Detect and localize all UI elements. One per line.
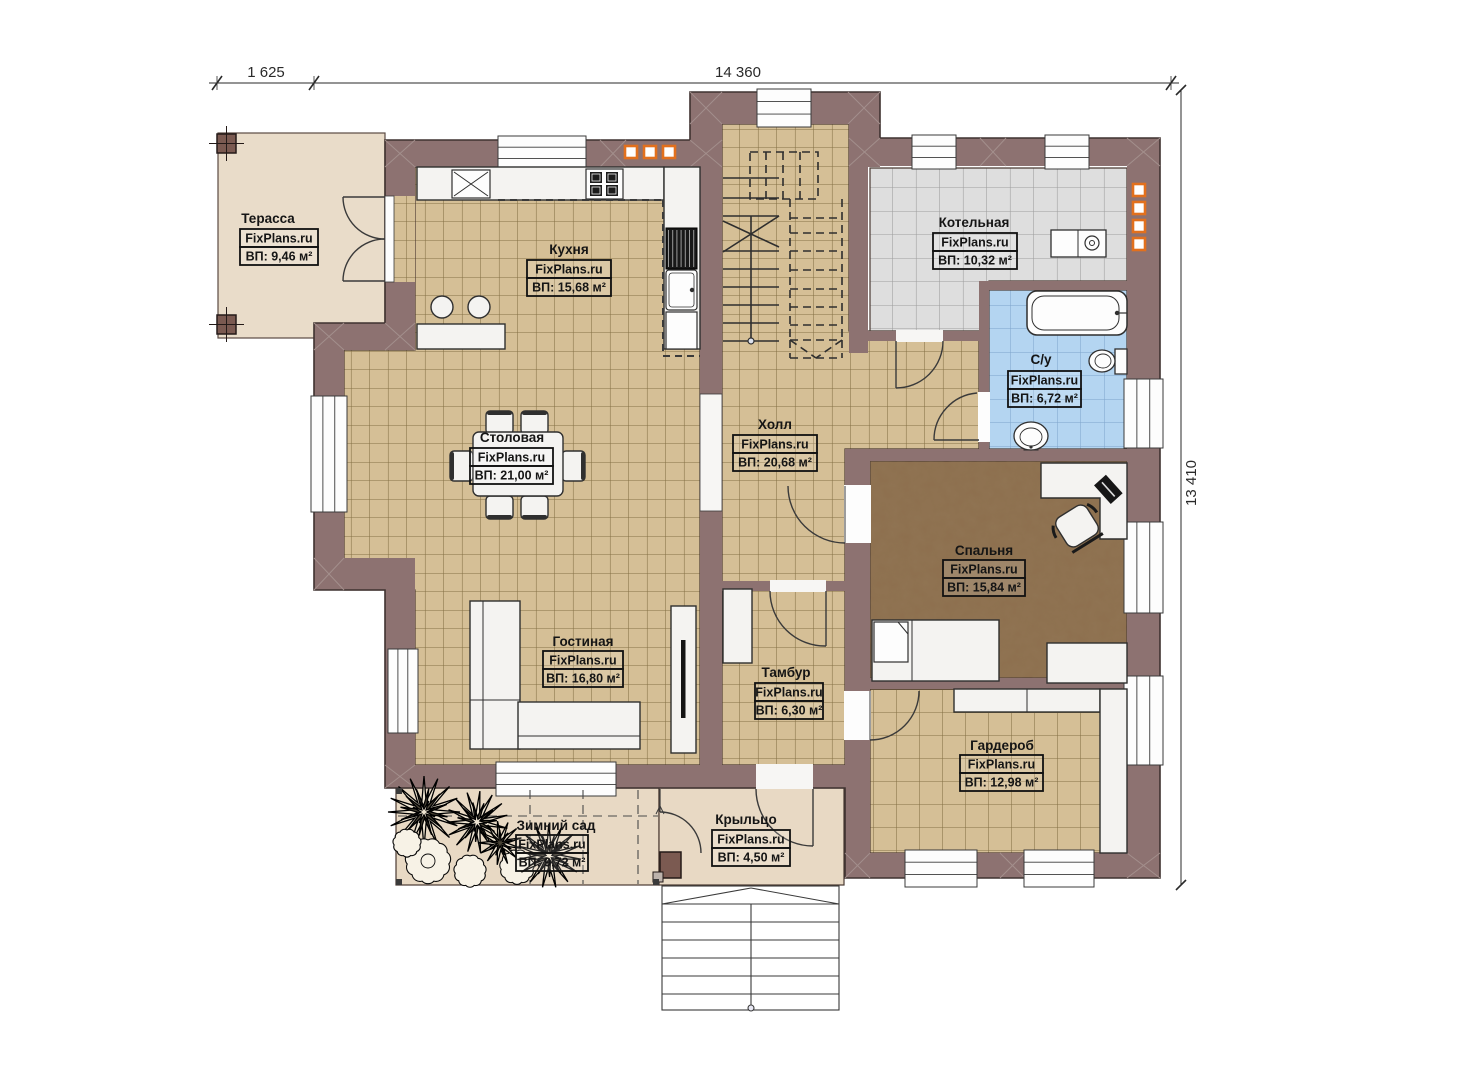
svg-text:FixPlans.ru: FixPlans.ru	[717, 833, 784, 847]
svg-text:С/у: С/у	[1030, 352, 1052, 367]
svg-text:ВП: 6,72 м²: ВП: 6,72 м²	[1011, 392, 1078, 406]
svg-text:13 410: 13 410	[1183, 460, 1200, 506]
svg-text:FixPlans.ru: FixPlans.ru	[968, 758, 1035, 772]
svg-text:FixPlans.ru: FixPlans.ru	[518, 838, 585, 852]
svg-text:FixPlans.ru: FixPlans.ru	[549, 654, 616, 668]
svg-text:FixPlans.ru: FixPlans.ru	[755, 686, 822, 700]
svg-text:Гардероб: Гардероб	[970, 738, 1034, 753]
svg-text:FixPlans.ru: FixPlans.ru	[941, 236, 1008, 250]
svg-text:Тамбур: Тамбур	[762, 665, 811, 680]
svg-text:Гостиная: Гостиная	[552, 634, 613, 649]
svg-text:ВП: 15,84 м²: ВП: 15,84 м²	[947, 581, 1021, 595]
svg-text:ВП: 9,46 м²: ВП: 9,46 м²	[246, 250, 313, 264]
svg-text:ВП: 9,72 м²: ВП: 9,72 м²	[519, 856, 586, 870]
svg-text:Крыльцо: Крыльцо	[715, 812, 776, 827]
svg-text:ВП: 10,32 м²: ВП: 10,32 м²	[938, 254, 1012, 268]
svg-text:1 625: 1 625	[247, 64, 285, 81]
svg-text:ВП: 16,80 м²: ВП: 16,80 м²	[546, 672, 620, 686]
svg-text:FixPlans.ru: FixPlans.ru	[741, 438, 808, 452]
svg-text:Спальня: Спальня	[955, 543, 1013, 558]
svg-text:14 360: 14 360	[715, 64, 761, 81]
svg-text:FixPlans.ru: FixPlans.ru	[950, 563, 1017, 577]
svg-text:Столовая: Столовая	[480, 430, 544, 445]
svg-text:ВП: 6,30 м²: ВП: 6,30 м²	[756, 704, 823, 718]
svg-text:Кухня: Кухня	[549, 242, 588, 257]
svg-text:Холл: Холл	[758, 417, 792, 432]
svg-text:Зимний сад: Зимний сад	[517, 818, 596, 833]
svg-text:ВП: 4,50 м²: ВП: 4,50 м²	[718, 851, 785, 865]
svg-text:ВП: 20,68 м²: ВП: 20,68 м²	[738, 456, 812, 470]
svg-text:Котельная: Котельная	[939, 215, 1010, 230]
svg-text:Терасса: Терасса	[241, 211, 295, 226]
svg-text:FixPlans.ru: FixPlans.ru	[245, 232, 312, 246]
svg-text:FixPlans.ru: FixPlans.ru	[535, 263, 602, 277]
svg-text:ВП: 12,98 м²: ВП: 12,98 м²	[965, 776, 1039, 790]
svg-text:ВП: 15,68 м²: ВП: 15,68 м²	[532, 281, 606, 295]
svg-text:FixPlans.ru: FixPlans.ru	[1011, 374, 1078, 388]
svg-text:ВП: 21,00 м²: ВП: 21,00 м²	[475, 469, 549, 483]
svg-text:FixPlans.ru: FixPlans.ru	[478, 451, 545, 465]
